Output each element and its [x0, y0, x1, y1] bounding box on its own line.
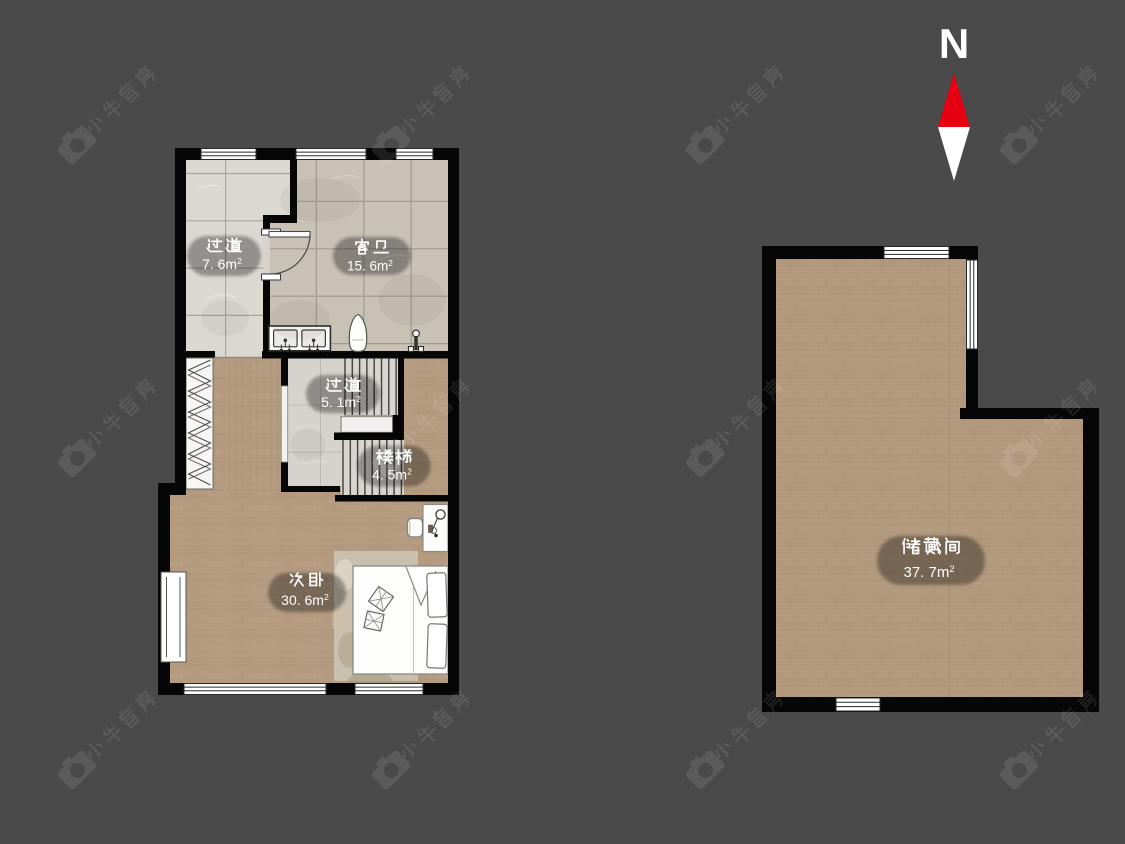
svg-text:15. 6m2: 15. 6m2 — [347, 258, 393, 274]
svg-text:37. 7m2: 37. 7m2 — [903, 564, 954, 581]
svg-text:7. 6m2: 7. 6m2 — [202, 256, 242, 272]
svg-text:5. 1m2: 5. 1m2 — [321, 394, 361, 410]
svg-text:N: N — [939, 20, 969, 67]
svg-text:30. 6m2: 30. 6m2 — [281, 592, 329, 608]
